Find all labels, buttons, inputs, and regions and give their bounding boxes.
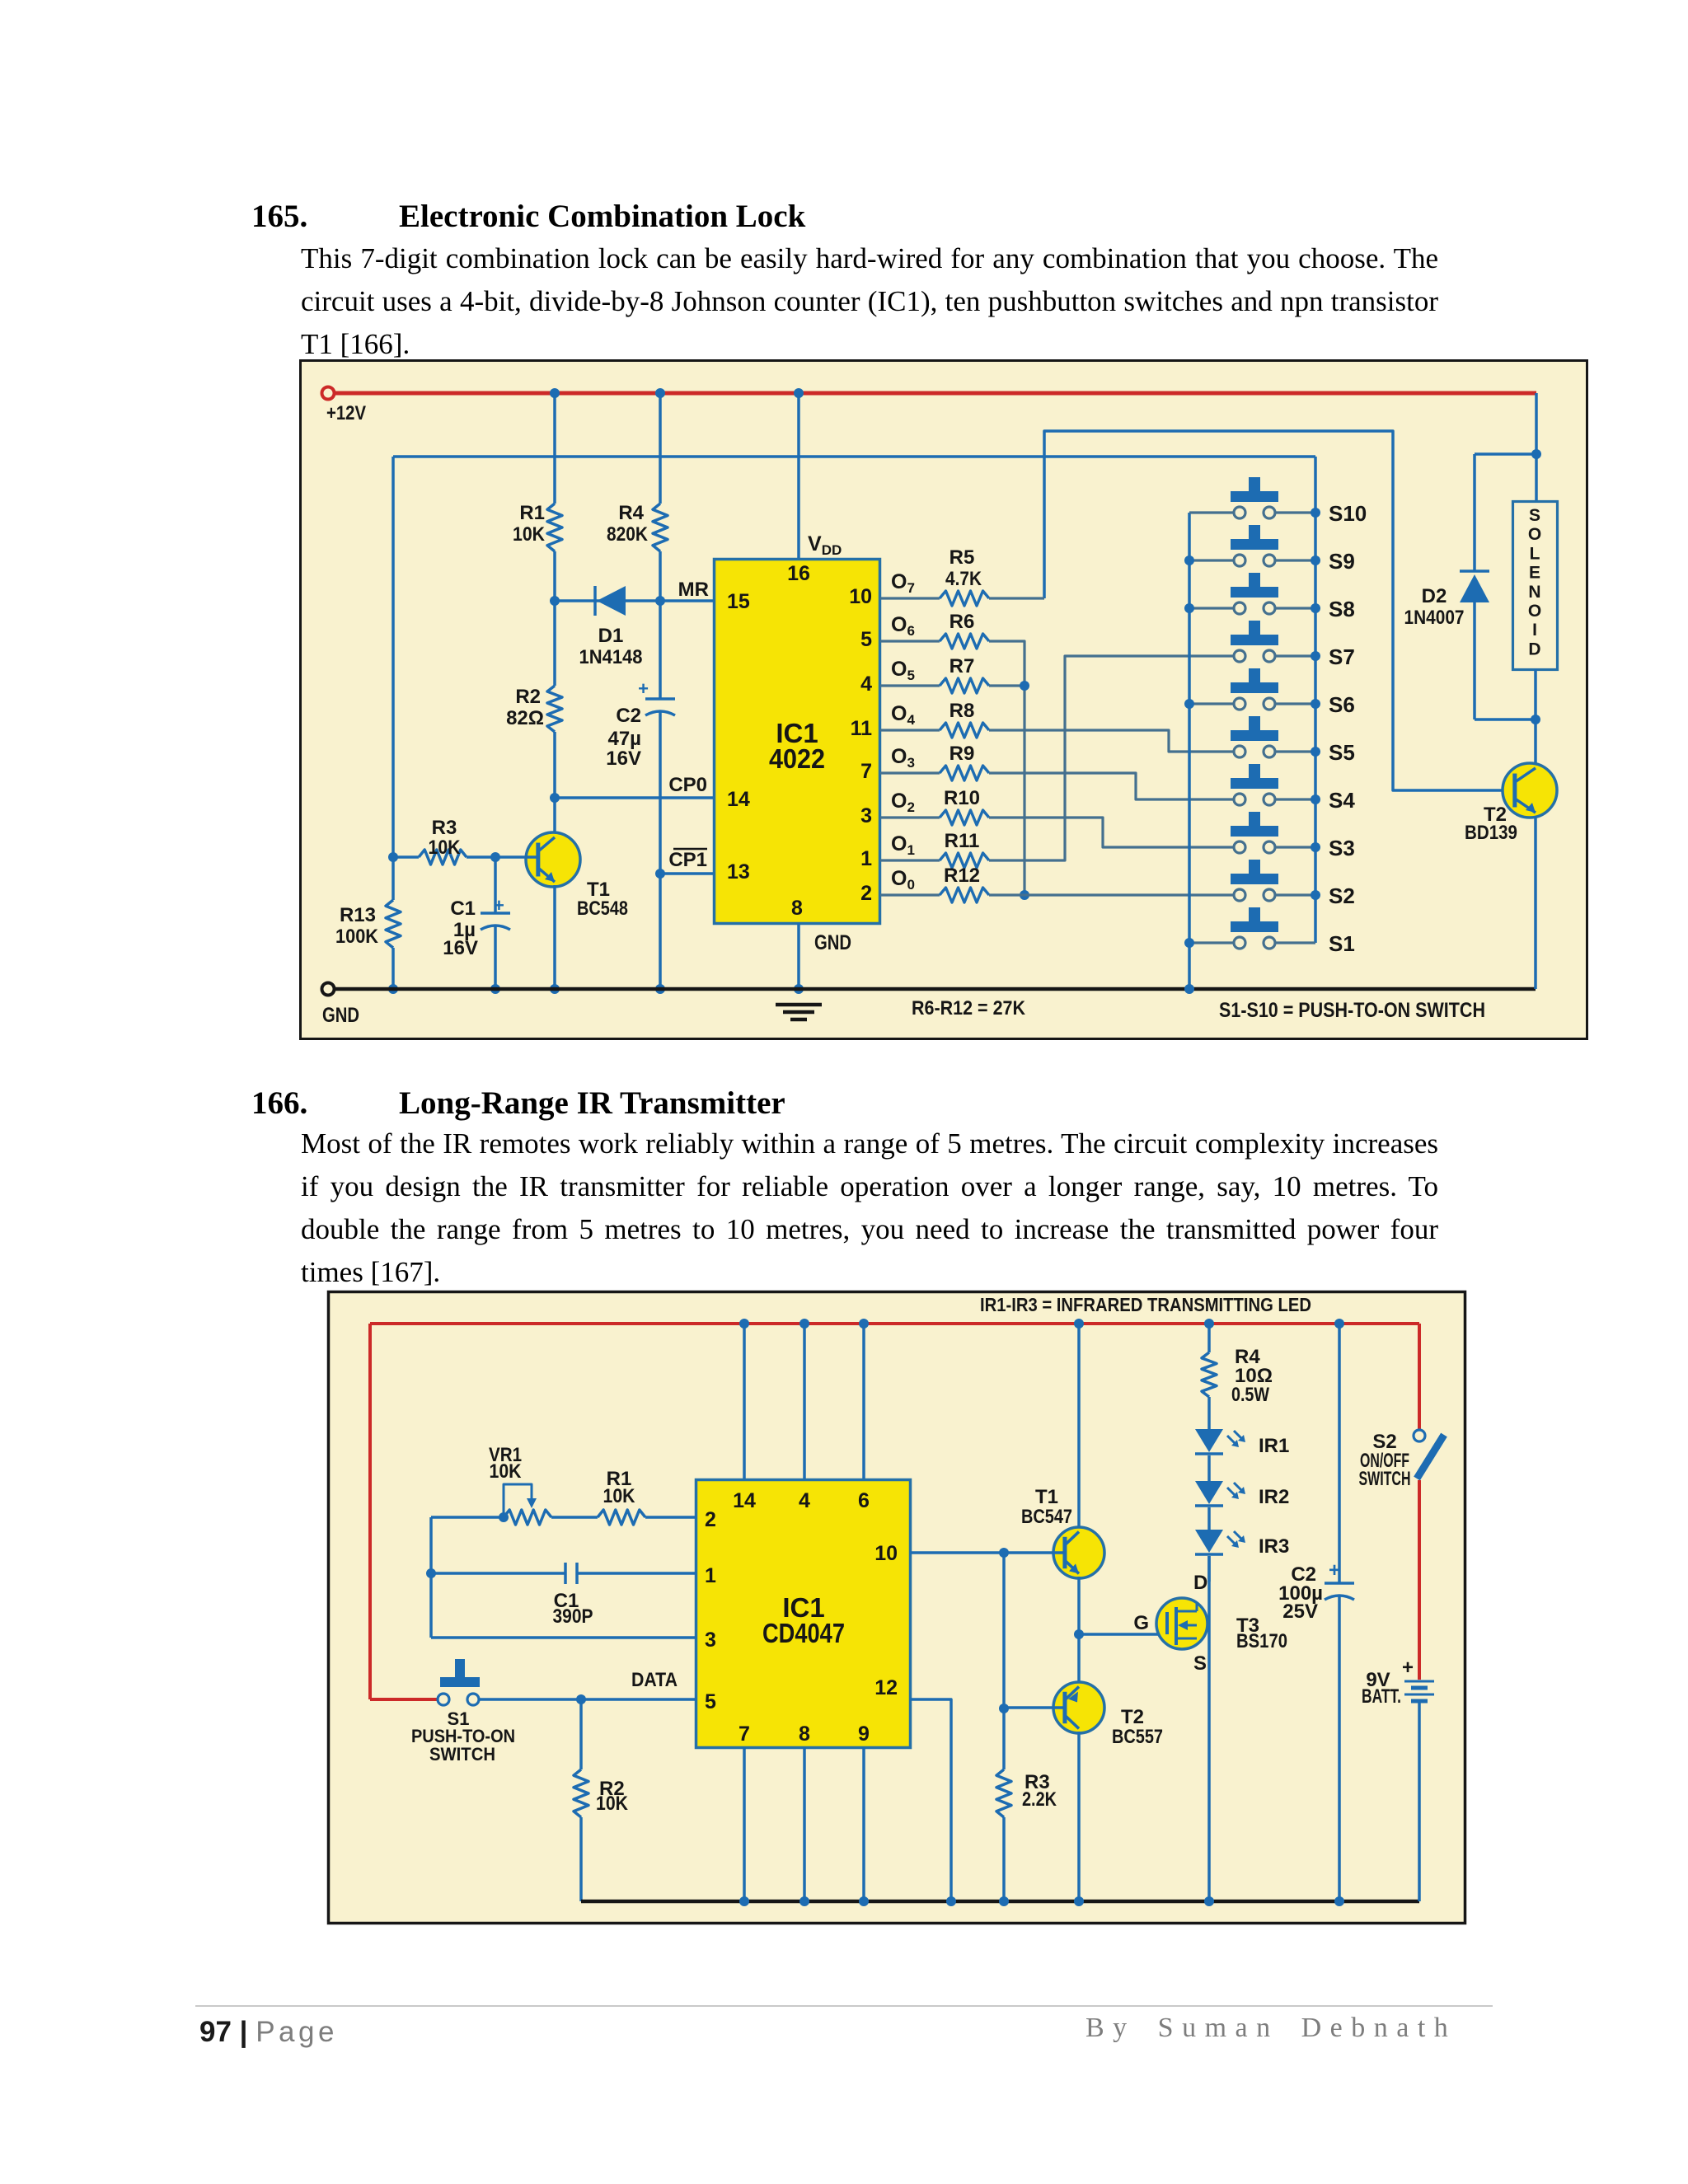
svg-text:25V: 25V: [1282, 1601, 1318, 1623]
svg-text:5: 5: [705, 1690, 716, 1713]
svg-text:+: +: [1402, 1657, 1414, 1679]
svg-text:DATA: DATA: [631, 1669, 678, 1691]
svg-text:T2: T2: [1121, 1706, 1144, 1728]
svg-text:10K: 10K: [490, 1460, 523, 1483]
svg-text:BC557: BC557: [1112, 1726, 1163, 1748]
svg-text:BC547: BC547: [1021, 1506, 1072, 1528]
svg-text:10: 10: [874, 1542, 898, 1565]
svg-text:SWITCH: SWITCH: [429, 1744, 495, 1765]
svg-text:+: +: [1329, 1559, 1340, 1582]
svg-text:3: 3: [705, 1629, 716, 1652]
svg-text:S: S: [1193, 1652, 1207, 1675]
svg-text:BATT.: BATT.: [1362, 1685, 1401, 1708]
svg-text:IR1-IR3 = INFRARED TRANSMITTIN: IR1-IR3 = INFRARED TRANSMITTING LED: [980, 1294, 1311, 1315]
svg-text:12: 12: [874, 1676, 898, 1699]
svg-text:390P: 390P: [553, 1605, 593, 1628]
svg-text:10K: 10K: [603, 1485, 636, 1507]
svg-text:T1: T1: [1035, 1486, 1058, 1508]
svg-text:IR2: IR2: [1259, 1486, 1289, 1508]
svg-text:6: 6: [858, 1489, 870, 1512]
svg-text:IR1: IR1: [1259, 1435, 1289, 1457]
svg-text:14: 14: [733, 1489, 756, 1512]
svg-text:2: 2: [705, 1508, 716, 1531]
svg-text:SWITCH: SWITCH: [1359, 1468, 1411, 1490]
svg-text:1: 1: [705, 1564, 716, 1587]
svg-text:4: 4: [799, 1489, 810, 1512]
svg-text:0.5W: 0.5W: [1231, 1384, 1269, 1406]
svg-text:CD4047: CD4047: [762, 1618, 845, 1648]
svg-text:7: 7: [738, 1722, 750, 1746]
svg-text:8: 8: [799, 1722, 810, 1746]
svg-text:BS170: BS170: [1236, 1630, 1287, 1652]
svg-text:D: D: [1193, 1572, 1207, 1594]
svg-text:G: G: [1133, 1612, 1149, 1634]
svg-text:2.2K: 2.2K: [1022, 1788, 1057, 1811]
svg-text:9: 9: [858, 1722, 870, 1746]
svg-text:IR3: IR3: [1259, 1535, 1289, 1558]
svg-text:10K: 10K: [596, 1793, 629, 1815]
